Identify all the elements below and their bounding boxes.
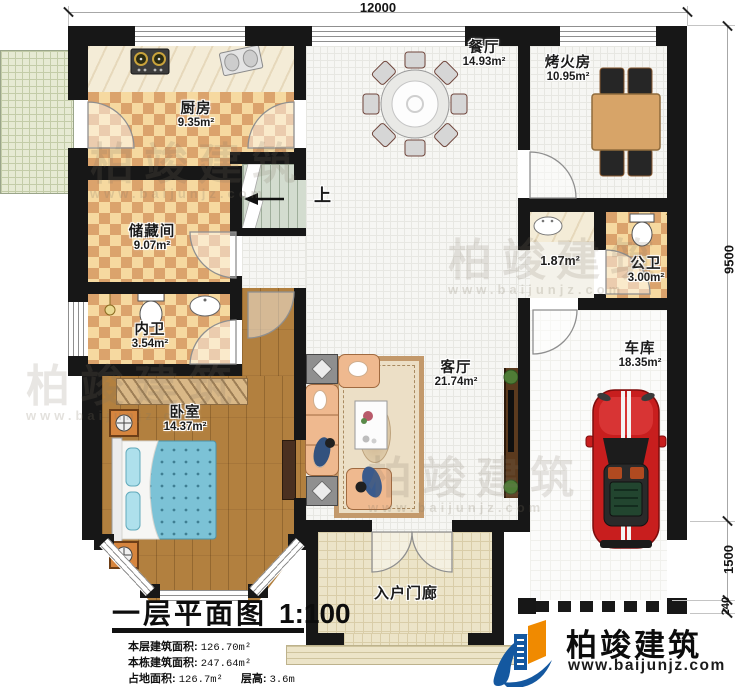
- room-area: 3.54m²: [100, 338, 200, 351]
- room-name: 餐厅: [434, 40, 534, 56]
- room-name: 厨房: [146, 101, 246, 117]
- summary-line: 本栋建筑面积: 247.64m²: [128, 656, 295, 672]
- summary-line: 本层建筑面积: 126.70m²: [128, 640, 295, 656]
- stairs-up-label: 上: [310, 186, 336, 205]
- room-name: 卧室: [135, 405, 235, 421]
- room-label-bath-private: 内卫 3.54m²: [100, 322, 200, 351]
- room-label-living: 客厅 21.74m²: [406, 360, 506, 389]
- room-name: 入户门廊: [346, 586, 466, 603]
- room-area: 9.35m²: [146, 117, 246, 130]
- door-kitchen-right: [248, 102, 294, 148]
- door-porch-right: [412, 532, 452, 572]
- room-name: 烤火房: [518, 55, 618, 71]
- door-garage-inner: [533, 310, 577, 354]
- room-name: 内卫: [100, 322, 200, 338]
- room-label-garage: 车库 18.35m²: [590, 341, 690, 370]
- room-name: 客厅: [406, 360, 506, 376]
- plan-scale: 1:100: [279, 598, 351, 630]
- room-name: 公卫: [596, 256, 696, 272]
- door-wash-area: [530, 152, 576, 198]
- room-area: 9.07m²: [100, 240, 204, 253]
- room-label-bath-public: 公卫 3.00m²: [596, 256, 696, 285]
- room-label-fire-room: 烤火房 10.95m²: [518, 55, 618, 84]
- room-label-wash-area: 1.87m²: [528, 254, 592, 268]
- floor-plan: 厨房 9.35m² 储藏间 9.07m² 内卫 3.54m² 卧室 14.37m…: [0, 0, 750, 687]
- company-url: www.baijunjz.com: [568, 657, 726, 675]
- room-area: 18.35m²: [590, 357, 690, 370]
- door-porch-left: [372, 532, 412, 572]
- room-label-bedroom: 卧室 14.37m²: [135, 405, 235, 434]
- room-label-kitchen: 厨房 9.35m²: [146, 101, 246, 130]
- room-label-storage: 储藏间 9.07m²: [100, 224, 204, 253]
- plan-title: 一层平面图 1:100: [112, 592, 351, 632]
- room-area: 14.37m²: [135, 421, 235, 434]
- room-name: 储藏间: [100, 224, 204, 240]
- area-summary: 本层建筑面积: 126.70m² 本栋建筑面积: 247.64m² 占地面积: …: [128, 640, 295, 687]
- plan-title-text: 一层平面图: [112, 592, 267, 632]
- door-hallway: [248, 292, 294, 338]
- room-area: 3.00m²: [596, 272, 696, 285]
- room-area: 10.95m²: [518, 71, 618, 84]
- title-underline: [112, 628, 304, 633]
- room-name: 车库: [590, 341, 690, 357]
- room-area: 21.74m²: [406, 376, 506, 389]
- room-label-porch: 入户门廊: [346, 586, 466, 603]
- room-area: 1.87m²: [528, 254, 592, 268]
- summary-line: 占地面积: 126.7m²层高: 3.6m: [128, 672, 295, 687]
- company-logo-icon: [488, 616, 566, 687]
- door-kitchen-left: [88, 102, 134, 148]
